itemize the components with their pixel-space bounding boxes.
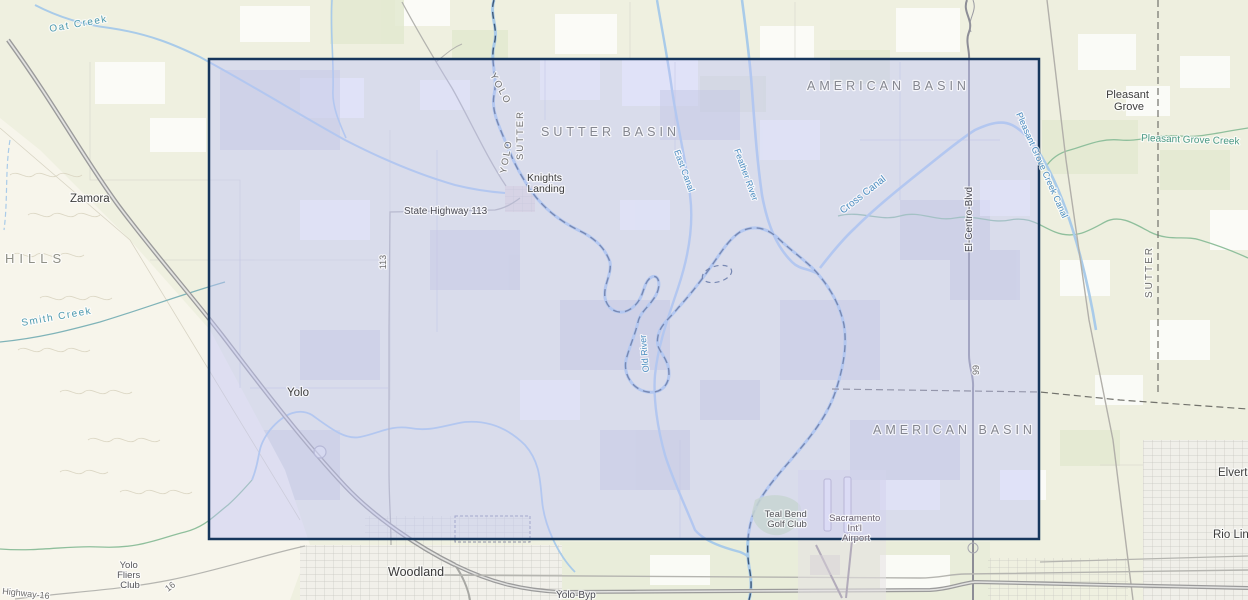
label-airport-line3: Airport	[842, 533, 870, 544]
label-route-113: 113	[378, 255, 388, 269]
label-el-centro-blvd: El-Centro-Blvd	[964, 187, 975, 252]
label-knights-landing: Knights Landing	[527, 172, 565, 195]
label-teal-bend: Teal Bend Golf Club	[765, 509, 810, 530]
label-yolo-town: Yolo	[287, 387, 309, 399]
label-teal-bend-line2: Golf Club	[767, 519, 807, 530]
label-rio-linda: Rio Linda	[1213, 529, 1248, 541]
label-yolo-byp: Yolo-Byp	[556, 590, 596, 600]
map-viewport[interactable]: Oat Creek Zamora HILLS Smith Creek Yolo …	[0, 0, 1248, 600]
label-american-basin-south: AMERICAN BASIN	[873, 423, 1036, 437]
terminal-blob	[810, 555, 840, 575]
label-hills: HILLS	[5, 251, 66, 266]
label-knights-landing-line2: Landing	[527, 183, 565, 195]
label-woodland: Woodland	[388, 565, 444, 579]
label-state-highway-113: State Highway 113	[404, 206, 488, 217]
label-pleasant-grove-line2: Grove	[1114, 101, 1144, 113]
label-pleasant-grove-line1: Pleasant	[1106, 89, 1149, 101]
label-elverta: Elverta	[1218, 467, 1248, 479]
basemap: Oat Creek Zamora HILLS Smith Creek Yolo …	[0, 0, 1248, 600]
label-route-99: 99	[971, 365, 981, 375]
label-yolo-fliers-club: Yolo Fliers Club	[117, 560, 143, 591]
label-sutter-basin: SUTTER BASIN	[541, 125, 680, 139]
label-zamora: Zamora	[70, 193, 110, 205]
label-sutter-county-a: SUTTER	[515, 110, 526, 160]
label-american-basin-north: AMERICAN BASIN	[807, 79, 970, 93]
label-yolo-fliers-line3: Club	[120, 580, 140, 591]
label-sutter-county-right: SUTTER	[1144, 246, 1155, 298]
